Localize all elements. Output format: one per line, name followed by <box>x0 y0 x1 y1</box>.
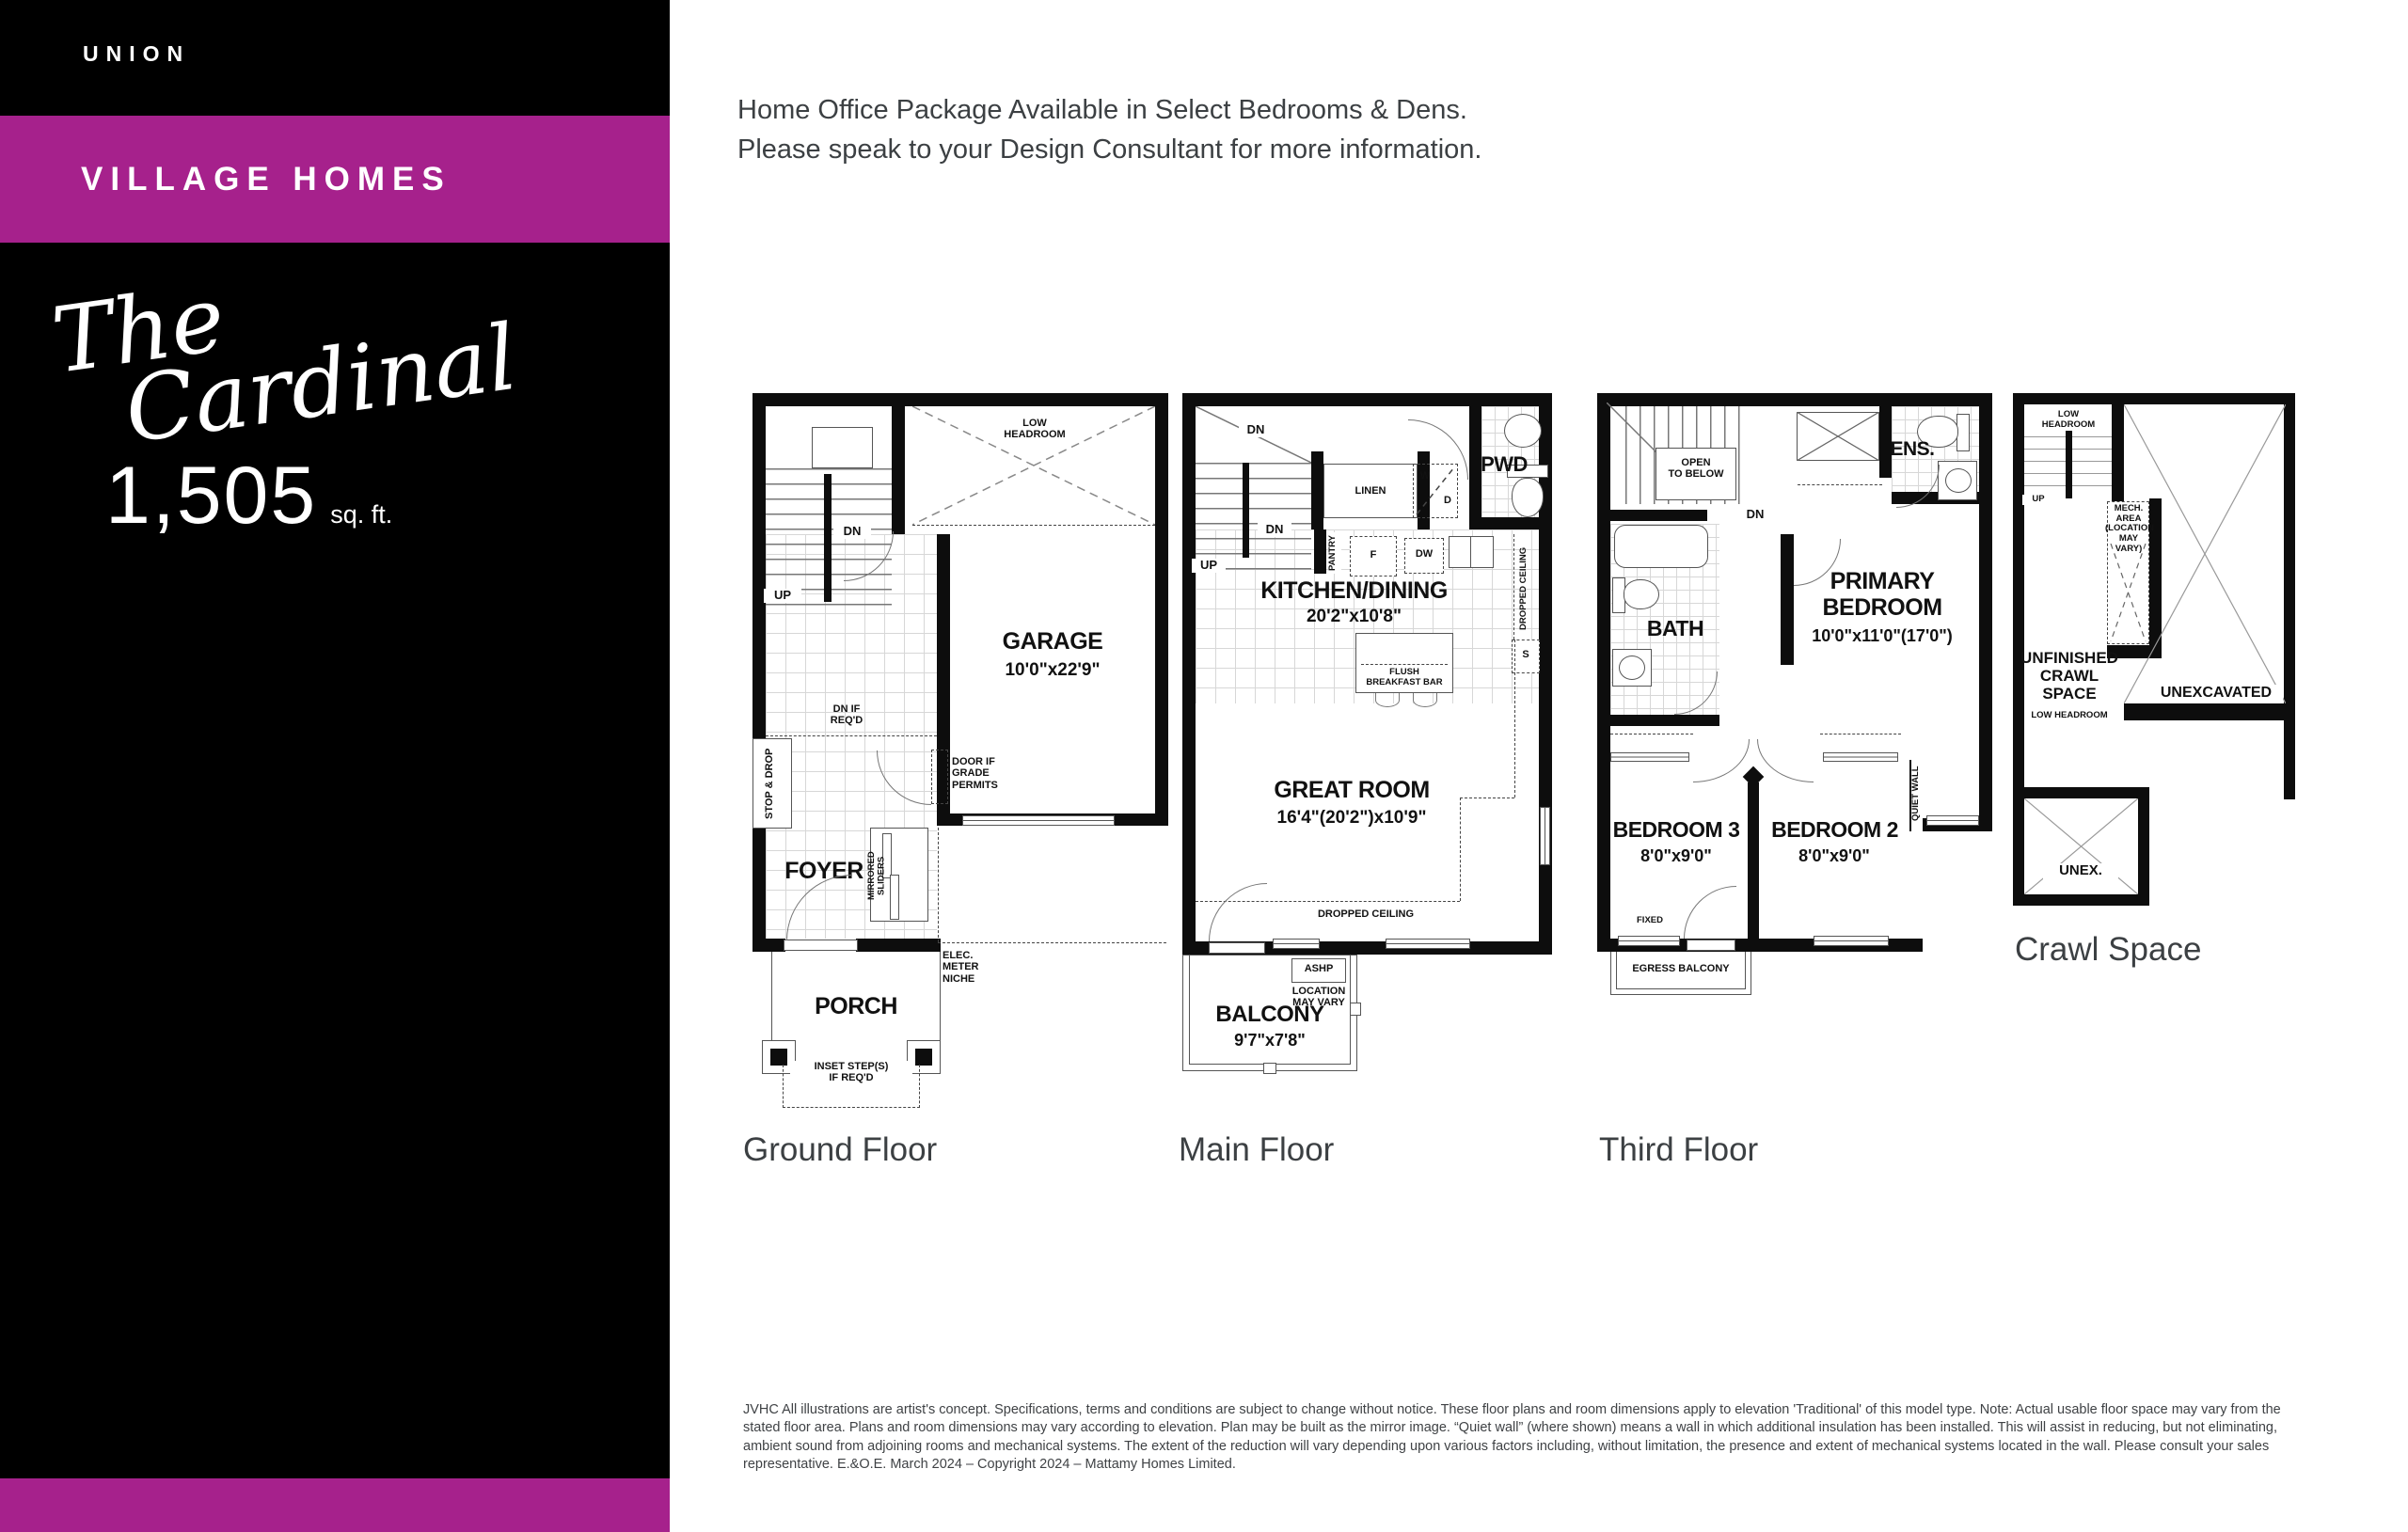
third-floor-plan: OPEN TO BELOW DN ENS. BATH PRIMARY BEDRO… <box>1597 393 1992 1004</box>
wall <box>2013 393 2295 404</box>
wall <box>1979 393 1992 831</box>
stove-divider <box>1470 536 1471 568</box>
unex-hatch <box>2024 798 2138 894</box>
wall <box>1597 393 1610 952</box>
wall <box>1182 393 1552 406</box>
bath-label: BATH <box>1635 617 1716 641</box>
ceiling-dash <box>1514 640 1515 798</box>
closet-hatch <box>1797 412 1879 461</box>
slider-panel <box>890 875 899 920</box>
area-unit: sq. ft. <box>330 500 392 529</box>
stair-up-label: UP <box>2022 495 2054 505</box>
quiet-wall-label: QUIET WALL <box>1911 756 1923 831</box>
bedroom3-label: BEDROOM 3 <box>1610 818 1742 843</box>
window <box>1386 939 1470 949</box>
pwd-door-swing <box>1408 419 1468 480</box>
ground-floor-caption: Ground Floor <box>743 1131 937 1169</box>
kitchen-label: KITCHEN/DINING <box>1253 577 1455 604</box>
ceiling-dash <box>1460 798 1514 798</box>
porch-post-core <box>915 1049 932 1066</box>
step-line <box>766 735 937 736</box>
collection-band: VILLAGE HOMES <box>0 116 670 243</box>
brochure-page: UNION VILLAGE HOMES The Cardinal 1,505 s… <box>0 0 2408 1532</box>
great-room-dim: 16'4"(20'2")x10'9" <box>1244 808 1460 828</box>
ceiling-dash <box>1798 484 1882 485</box>
elec-meter-label: ELEC. METER NICHE <box>943 950 999 985</box>
wall <box>1311 451 1323 529</box>
porch-label: PORCH <box>801 993 911 1019</box>
garage-dim: 10'0"x22'9" <box>982 660 1123 680</box>
wall <box>1597 715 1719 726</box>
stair-up-label: UP <box>1192 559 1226 573</box>
closet-sliders <box>1823 752 1898 762</box>
bedroom3-door-swing <box>1693 739 1750 782</box>
wall <box>752 393 1168 406</box>
window <box>1273 939 1320 949</box>
egress-door-threshold <box>1687 940 1735 951</box>
egress-balcony-label: EGRESS BALCONY <box>1618 963 1744 974</box>
wall <box>856 939 941 952</box>
ceiling-dash <box>1610 734 1693 734</box>
garage-label: GARAGE <box>982 628 1123 655</box>
rail-post <box>1350 1003 1361 1016</box>
stool <box>1413 693 1437 707</box>
wall <box>1182 393 1196 955</box>
stair-dn-label: DN <box>1239 423 1273 437</box>
stair-winder <box>1607 403 1663 459</box>
crawl-space-plan: UNEXCAVATED LOW HEADROOM UP MECH. AREA (… <box>2013 393 2300 976</box>
ens-sink <box>1945 468 1972 493</box>
dn-if-reqd-label: DN IF REQ'D <box>804 703 889 727</box>
primary-dim: 10'0"x11'0"(17'0") <box>1798 626 1967 645</box>
area-line: 1,505 sq. ft. <box>105 450 392 543</box>
inset-steps-label: INSET STEP(S) IF REQ'D <box>790 1061 912 1084</box>
primary-label: PRIMARY BEDROOM <box>1812 568 1953 621</box>
collection-name: VILLAGE HOMES <box>81 161 451 198</box>
wall <box>2013 787 2149 798</box>
ground-floor-plan: LOW HEADROOM DN UP DN IF REQ'D STOP & DR… <box>752 393 1168 1119</box>
ceiling-dash <box>1460 798 1461 901</box>
dryer-label: D <box>1438 495 1457 506</box>
wall <box>1155 393 1168 826</box>
wall <box>1748 782 1759 939</box>
open-to-below-label: OPEN TO BELOW <box>1655 457 1736 481</box>
wall <box>752 393 766 952</box>
balcony-door-threshold <box>1209 942 1265 954</box>
bedroom2-dim: 8'0"x9'0" <box>1778 846 1891 865</box>
wall <box>2138 787 2149 906</box>
bathtub <box>1614 525 1708 568</box>
unfinished-sub-label: LOW HEADROOM <box>2022 711 2116 721</box>
low-headroom-label: LOW HEADROOM <box>2034 410 2103 430</box>
window <box>1926 815 1979 826</box>
door-grade-label: DOOR IF GRADE PERMITS <box>952 756 1025 791</box>
wall <box>2112 393 2124 506</box>
stair-landing <box>812 427 873 468</box>
unfinished-label: UNFINISHED CRAWL SPACE <box>2017 649 2122 703</box>
stair-rail <box>1243 463 1249 558</box>
great-room-label: GREAT ROOM <box>1248 777 1455 803</box>
crawl-space-caption: Crawl Space <box>2015 931 2201 969</box>
front-door-threshold <box>784 940 858 951</box>
porch-post-core <box>770 1049 787 1066</box>
dishwasher-label: DW <box>1404 548 1444 560</box>
header-note: Home Office Package Available in Select … <box>737 90 1481 169</box>
stair-rail <box>2066 431 2072 498</box>
bedroom3-dim: 8'0"x9'0" <box>1620 846 1733 865</box>
driveway-line <box>938 828 939 942</box>
egress-door-swing <box>1684 886 1736 939</box>
wall <box>1481 517 1552 529</box>
driveway-line <box>938 942 1166 943</box>
fixed-window <box>1618 936 1680 946</box>
stair-dn-label: DN <box>1738 508 1772 522</box>
stool <box>1375 693 1400 707</box>
stove <box>1449 536 1494 568</box>
window <box>1814 936 1889 946</box>
area-value: 1,505 <box>105 450 317 543</box>
accent-strip <box>0 1478 670 1532</box>
mech-hatch <box>2107 544 2149 641</box>
brand-name: UNION <box>83 41 190 67</box>
wall <box>2013 894 2149 906</box>
balcony-door-swing <box>1209 883 1267 941</box>
door-jamb <box>1743 766 1765 788</box>
wall <box>2124 703 2295 720</box>
unexcavated-label: UNEXCAVATED <box>2149 685 2283 702</box>
toilet-tank <box>1956 414 1970 451</box>
sidebar: UNION VILLAGE HOMES The Cardinal 1,505 s… <box>0 0 670 1532</box>
pantry-label: PANTRY <box>1328 532 1341 574</box>
closet-sliders <box>1610 752 1689 762</box>
stop-drop-label: STOP & DROP <box>764 743 781 824</box>
balcony-label: BALCONY <box>1212 1003 1327 1028</box>
fixed-label: FIXED <box>1625 916 1674 926</box>
bedroom2-label: BEDROOM 2 <box>1766 818 1903 843</box>
fridge-label: F <box>1350 549 1397 561</box>
main-floor-caption: Main Floor <box>1179 1131 1334 1169</box>
model-name-script: The Cardinal <box>48 229 592 460</box>
wall <box>892 406 905 534</box>
disclaimer-text: JVHC All illustrations are artist's conc… <box>743 1401 2305 1474</box>
low-headroom-limit <box>912 525 1155 526</box>
dropped-ceiling-line <box>1513 534 1514 640</box>
unex-label: UNEX. <box>2043 863 2118 879</box>
bath-sink <box>1619 655 1645 680</box>
dropped-ceiling-side-label: DROPPED CEILING <box>1519 542 1532 636</box>
linen-label: LINEN <box>1328 485 1413 497</box>
kitchen-dim: 20'2"x10'8" <box>1272 607 1436 626</box>
sink-label: S <box>1512 649 1540 660</box>
island-bar-line <box>1361 664 1448 665</box>
dropped-ceiling-bottom-label: DROPPED CEILING <box>1286 908 1446 920</box>
window <box>1540 807 1550 865</box>
garage-front-window <box>962 815 1115 826</box>
ens-label: ENS. <box>1881 438 1943 461</box>
toilet-bowl <box>1512 478 1544 517</box>
pwd-sink <box>1504 414 1542 448</box>
mech-area-label: MECH. AREA (LOCATION MAY VARY) <box>2105 504 2152 554</box>
header-line1: Home Office Package Available in Select … <box>737 90 1481 130</box>
bedroom2-door-swing <box>1757 739 1814 782</box>
header-line2: Please speak to your Design Consultant f… <box>737 130 1481 169</box>
third-floor-caption: Third Floor <box>1599 1131 1758 1169</box>
balcony-dim: 9'7"x7'8" <box>1222 1031 1318 1050</box>
ceiling-dash <box>1820 734 1901 734</box>
stair-dn-label: DN <box>1258 523 1291 537</box>
wall <box>1610 510 1707 521</box>
stair-up-label: UP <box>764 589 801 603</box>
wall <box>1314 529 1326 574</box>
low-headroom-label: LOW HEADROOM <box>990 418 1080 441</box>
wall <box>1781 534 1794 665</box>
main-floor-plan: DN DN UP LINEN W D PWD PANTRY F DW S DRO… <box>1182 393 1552 1084</box>
pwd-label: PWD <box>1470 453 1538 477</box>
mirrored-sliders-label: MIRRORED SLIDERS <box>867 831 880 920</box>
stair-rail <box>824 474 832 602</box>
rail-post <box>1263 1063 1276 1074</box>
flush-bar-label: FLUSH BREAKFAST BAR <box>1359 668 1450 687</box>
wall <box>752 939 785 952</box>
toilet-bowl <box>1624 579 1659 609</box>
grade-door <box>931 750 948 804</box>
